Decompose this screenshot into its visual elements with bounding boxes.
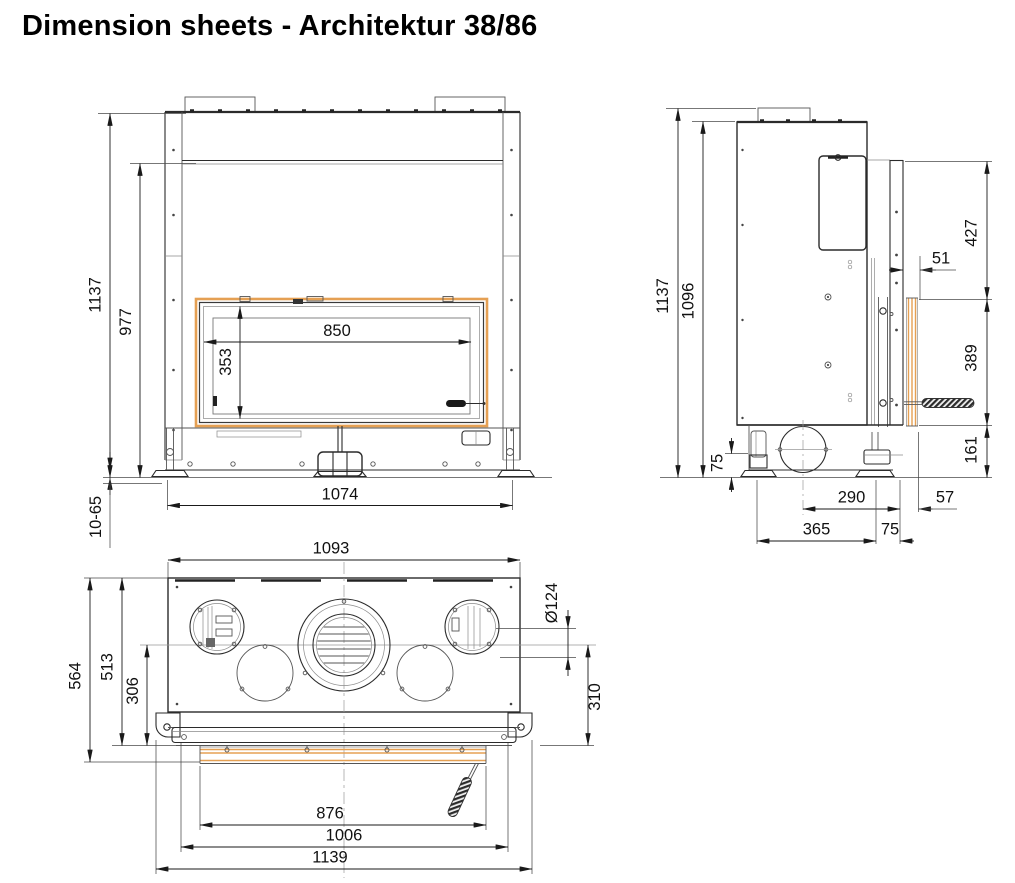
dim-top-overall-width: 1139 (312, 849, 347, 867)
knockout-right (397, 645, 453, 701)
dim-front-base-width: 1074 (322, 486, 359, 504)
center-support (318, 452, 362, 476)
dim-front-overall-height: 1137 (87, 277, 105, 312)
access-panel (819, 155, 866, 250)
top-view: 1093 (67, 540, 605, 879)
dim-top-connection-diameter: Ø124 (543, 583, 561, 623)
dim-top-center-to-door: 310 (586, 683, 604, 711)
dim-side-door-height: 389 (963, 344, 981, 372)
fire-door-side (909, 298, 916, 426)
dim-top-body-depth: 513 (99, 653, 117, 681)
dim-side-base-foot-height: 75 (709, 454, 727, 472)
dim-top-front-frame-width: 1006 (326, 827, 363, 845)
dim-side-overall-height: 1137 (654, 278, 672, 313)
dim-side-upper-front-height: 427 (963, 219, 981, 247)
dim-top-overall-depth: 564 (67, 662, 85, 690)
dim-top-door-width: 876 (316, 805, 344, 823)
dim-side-foot-spacing: 365 (803, 521, 831, 539)
knockout-left (237, 645, 293, 701)
door-handle-top (447, 764, 479, 819)
front-view: 1137 977 850 353 10-65 1074 (87, 97, 553, 548)
dimension-sheet-page: Dimension sheets - Architektur 38/86 (0, 0, 1015, 883)
dim-side-body-height: 1096 (680, 283, 698, 320)
dim-front-glass-height: 353 (217, 348, 235, 376)
dim-side-foot-to-front: 75 (881, 521, 899, 539)
dim-side-flue-to-front: 290 (838, 489, 866, 507)
dim-front-foot-adjustment: 10-65 (87, 496, 105, 538)
dim-front-glass-width: 850 (323, 322, 351, 340)
dim-side-lower-front-height: 161 (963, 436, 981, 464)
dim-top-center-to-front: 306 (124, 677, 142, 705)
dim-side-door-frame-depth: 51 (932, 250, 950, 268)
dim-front-frame-height: 977 (117, 308, 135, 336)
combustion-air-connection (775, 420, 832, 515)
convection-outlet-right (445, 600, 499, 654)
mounting-bracket (758, 108, 810, 122)
convection-outlet-left (190, 600, 244, 654)
side-view: 1137 1096 427 51 389 161 75 (654, 108, 992, 544)
door-handle-side (904, 399, 974, 408)
fire-door-top (200, 745, 486, 764)
dim-top-body-width: 1093 (313, 540, 350, 558)
technical-drawing: 1137 977 850 353 10-65 1074 (0, 0, 1015, 883)
dim-side-front-overhang: 57 (936, 489, 954, 507)
